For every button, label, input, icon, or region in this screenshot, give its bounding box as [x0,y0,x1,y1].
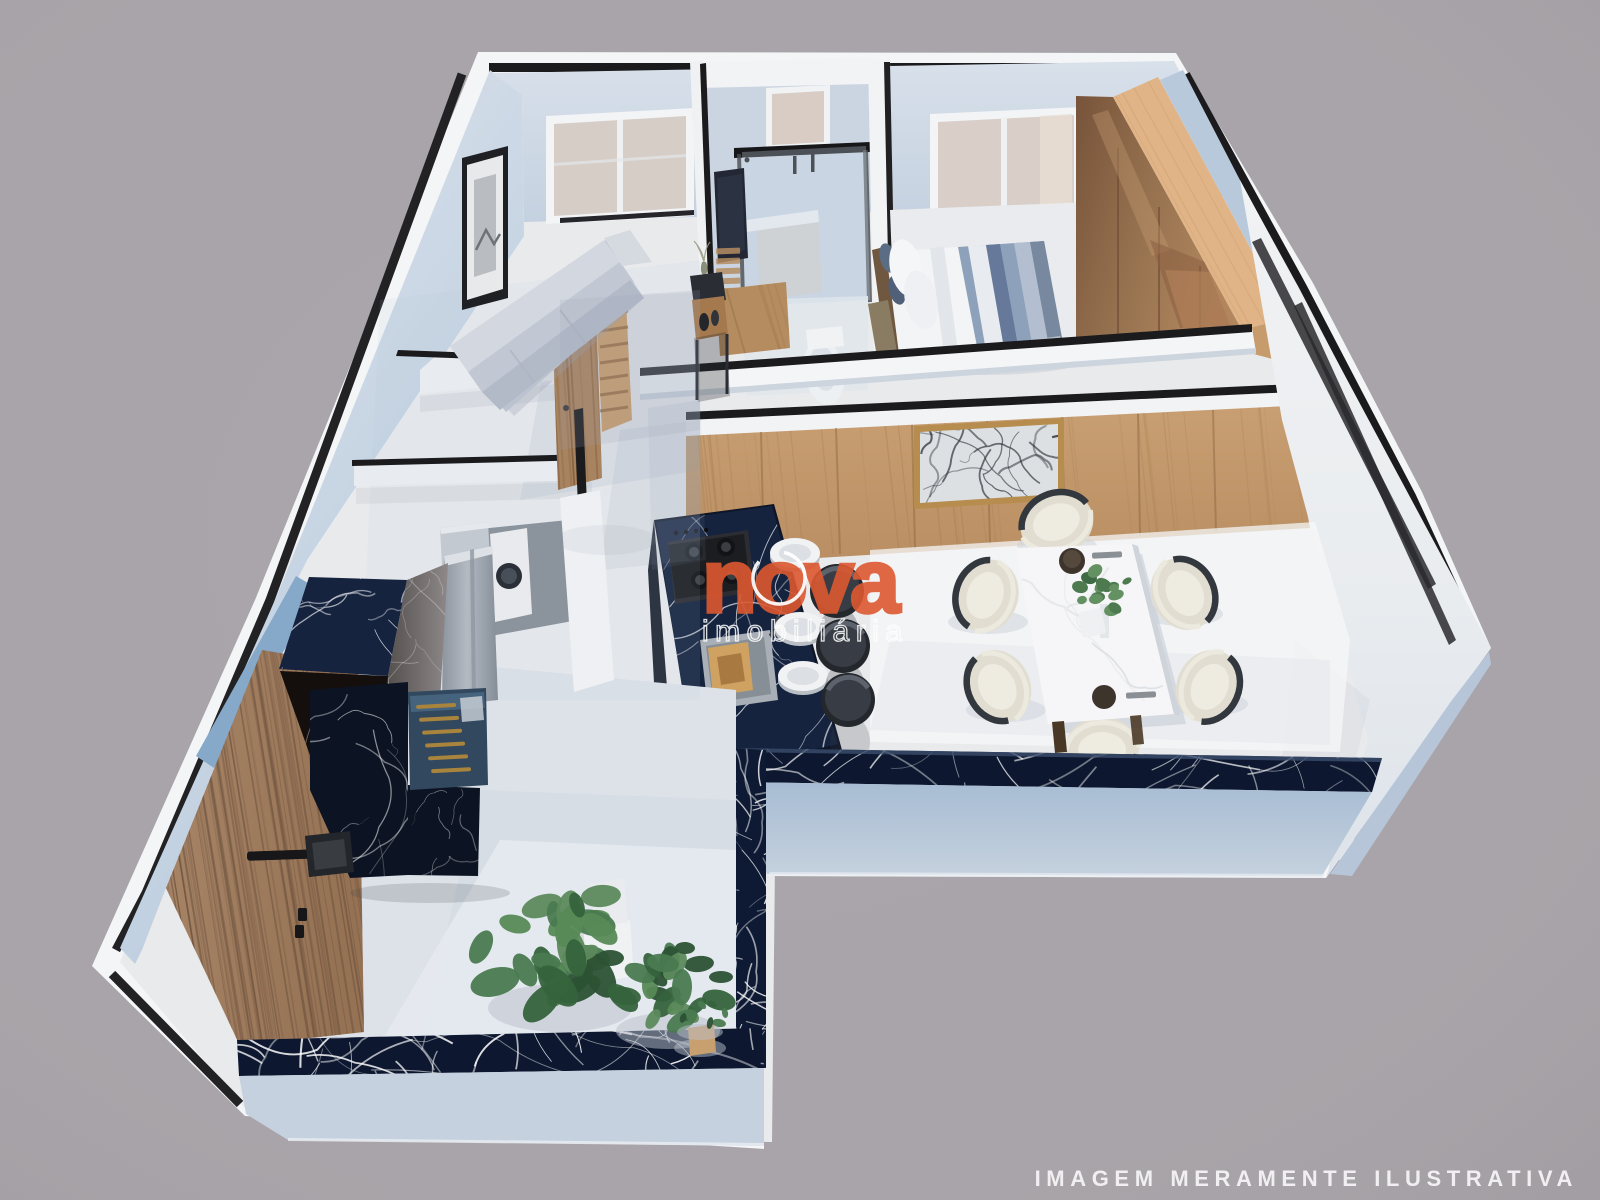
svg-text:imobiliária: imobiliária [702,615,909,648]
svg-text:IMAGEM MERAMENTE ILUSTRATIVA: IMAGEM MERAMENTE ILUSTRATIVA [1035,1166,1578,1191]
